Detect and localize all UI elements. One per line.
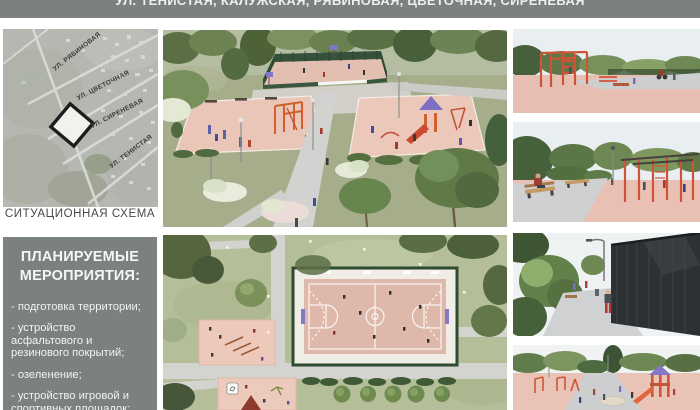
- mesh-fence: [611, 233, 700, 336]
- render-workout-equipment-1: [513, 29, 700, 113]
- basketball-hoop-icon: [330, 45, 338, 50]
- title-banner: УЛ. ТЕНИСТАЯ, КАЛУЖСКАЯ, РЯБИНОВАЯ, ЦВЕТ…: [0, 0, 700, 18]
- basketball-hoop-icon: [266, 72, 273, 77]
- plan-workout-area: [199, 320, 275, 365]
- render-path-along-fence: [513, 233, 700, 336]
- measure-item: - устройство асфальтового и резинового п…: [11, 322, 149, 360]
- satellite-map-illustration: УЛ. РЯБИНОВАЯ УЛ. ЦВЕТОЧНАЯ УЛ. СИРЕНЕВА…: [3, 29, 158, 207]
- playground-plan-icon: [227, 383, 238, 394]
- measures-list: - подготовка территории; - устройство ас…: [11, 301, 149, 410]
- backboard-icon: [301, 309, 305, 324]
- render-playground-wide: [513, 345, 700, 410]
- render-workout-equipment-2: [513, 122, 700, 222]
- backboard-icon: [445, 309, 449, 324]
- planned-measures-panel: ПЛАНИРУЕМЫЕ МЕРОПРИЯТИЯ: - подготовка те…: [3, 237, 157, 410]
- plan-basketball-court: [293, 268, 457, 365]
- measure-item: - озеленение;: [11, 369, 149, 382]
- presentation-slide: УЛ. ТЕНИСТАЯ, КАЛУЖСКАЯ, РЯБИНОВАЯ, ЦВЕТ…: [0, 0, 700, 410]
- render-top-view-plan: [163, 235, 507, 410]
- slide-title: УЛ. ТЕНИСТАЯ, КАЛУЖСКАЯ, РЯБИНОВАЯ, ЦВЕТ…: [0, 0, 700, 8]
- plan-kids-area: [218, 378, 296, 410]
- render-perspective-overview: [163, 30, 507, 227]
- measure-item: - устройство игровой и спортивных площад…: [11, 390, 149, 410]
- measures-heading: ПЛАНИРУЕМЫЕ МЕРОПРИЯТИЯ:: [11, 248, 149, 286]
- map-caption: СИТУАЦИОННАЯ СХЕМА: [0, 208, 160, 220]
- situation-map: УЛ. РЯБИНОВАЯ УЛ. ЦВЕТОЧНАЯ УЛ. СИРЕНЕВА…: [3, 29, 158, 207]
- bench: [613, 83, 629, 86]
- measure-item: - подготовка территории;: [11, 301, 149, 314]
